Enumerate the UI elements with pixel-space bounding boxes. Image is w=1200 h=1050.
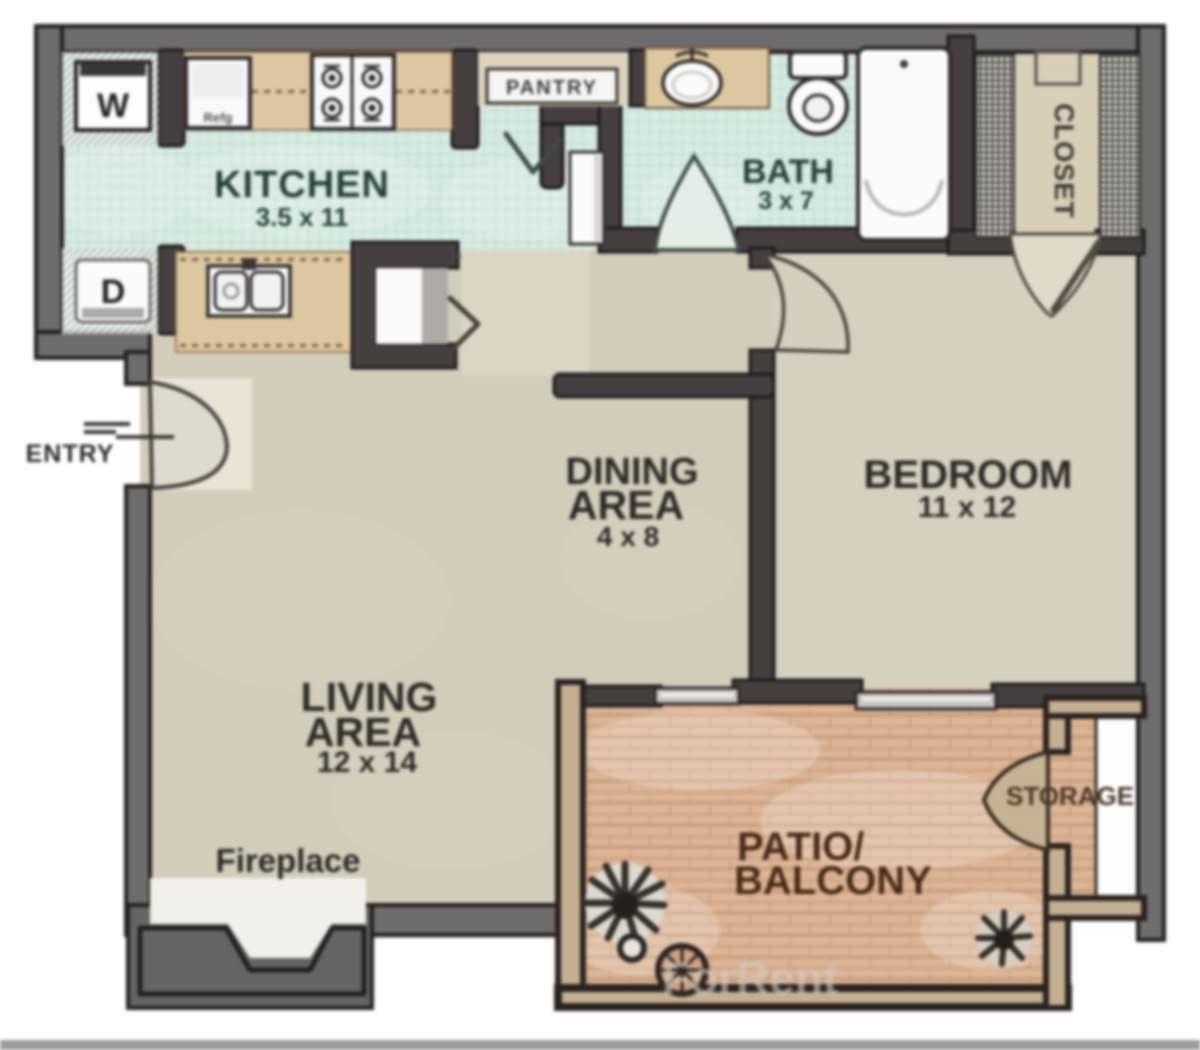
svg-text:STORAGE: STORAGE bbox=[1006, 781, 1134, 811]
svg-text:CLOSET: CLOSET bbox=[1049, 103, 1079, 219]
svg-text:W: W bbox=[97, 87, 130, 125]
svg-text:4 x 8: 4 x 8 bbox=[597, 521, 659, 552]
svg-text:3.5 x 11: 3.5 x 11 bbox=[256, 202, 349, 232]
svg-text:D: D bbox=[101, 273, 126, 311]
svg-text:Refg: Refg bbox=[204, 110, 233, 125]
svg-text:ForRent: ForRent bbox=[662, 952, 838, 1004]
svg-text:12 x 14: 12 x 14 bbox=[317, 746, 417, 779]
svg-text:KITCHEN: KITCHEN bbox=[214, 164, 390, 206]
svg-text:3 x 7: 3 x 7 bbox=[758, 187, 814, 215]
svg-text:BATH: BATH bbox=[742, 153, 834, 191]
svg-text:ENTRY: ENTRY bbox=[26, 440, 115, 468]
svg-text:PANTRY: PANTRY bbox=[506, 77, 598, 99]
svg-text:BALCONY: BALCONY bbox=[734, 859, 932, 903]
svg-text:11 x 12: 11 x 12 bbox=[918, 491, 1016, 524]
svg-text:Fireplace: Fireplace bbox=[216, 842, 361, 879]
